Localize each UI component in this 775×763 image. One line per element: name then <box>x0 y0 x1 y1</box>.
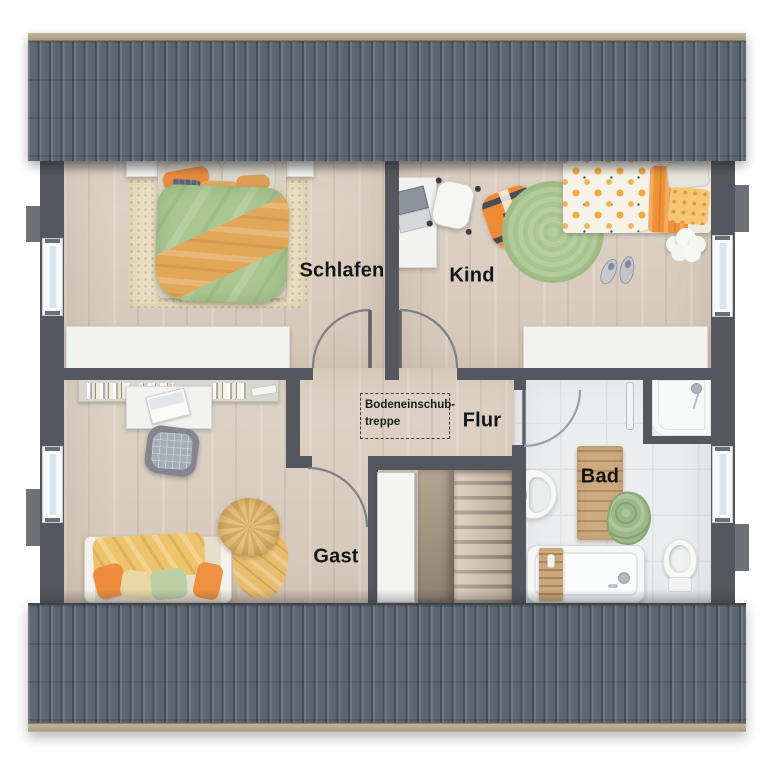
room-label-kind: Kind <box>449 265 494 288</box>
room-label-flur: Flur <box>463 410 502 433</box>
room-label-schlafen: Schlafen <box>300 260 385 283</box>
attic-stairs-annotation: Bodeneinschub- treppe <box>360 393 450 439</box>
door-arc-kind <box>400 310 457 368</box>
attic-stairs-line1: Bodeneinschub- <box>365 397 445 414</box>
door-arc-bad <box>524 390 580 446</box>
door-arc-gast <box>308 468 367 527</box>
attic-floor-plan: Schlafen Kind Flur Gast Bad Bodeneinschu… <box>0 0 775 763</box>
room-label-gast: Gast <box>313 546 358 569</box>
attic-stairs-line2: treppe <box>365 414 445 431</box>
room-label-bad: Bad <box>581 466 619 489</box>
door-arc-schlafen <box>313 310 370 368</box>
door-swing-overlay <box>0 0 775 763</box>
